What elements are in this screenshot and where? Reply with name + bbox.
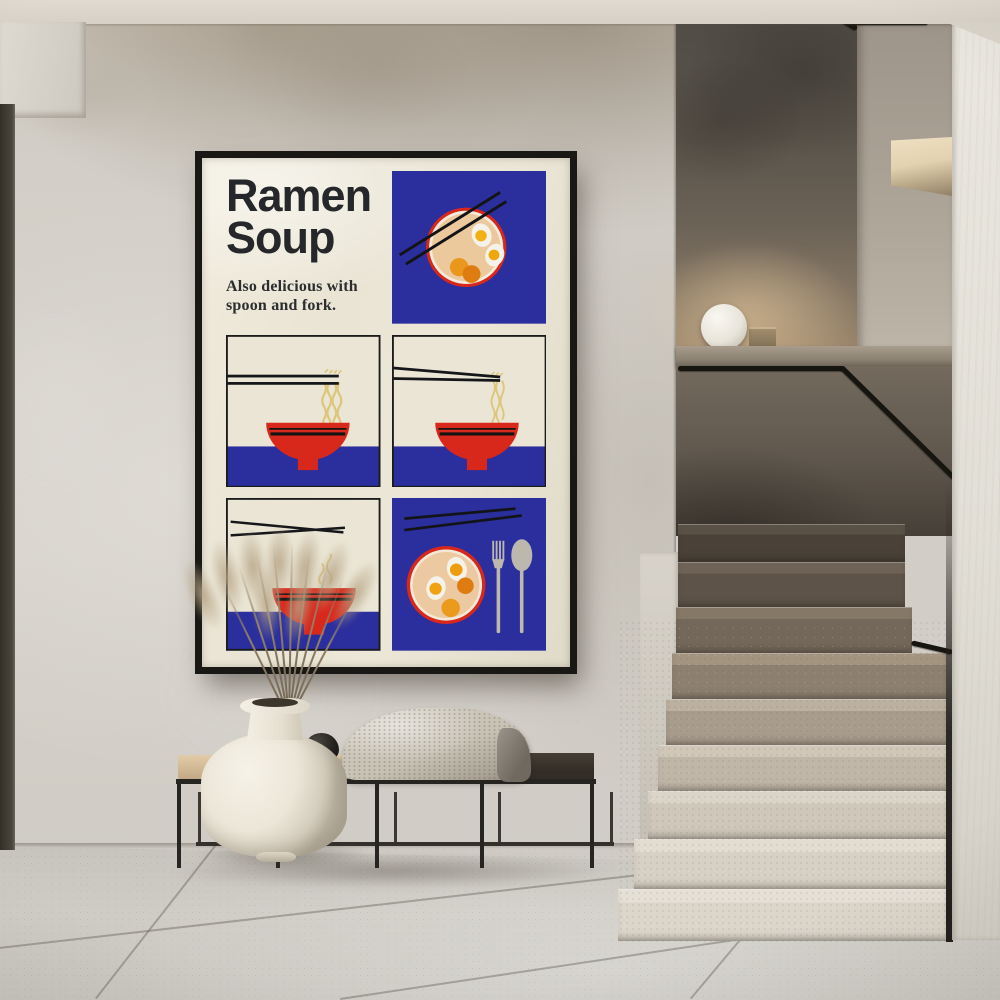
poster-title-block: Ramen Soup Also delicious with spoon and… xyxy=(226,171,381,324)
bench-leg xyxy=(590,784,594,868)
foreground-wall-texture xyxy=(952,22,1000,940)
stair-step xyxy=(618,889,946,941)
dried-pampas-grass xyxy=(160,530,420,720)
subtitle-line-1: Also delicious with xyxy=(226,277,381,297)
poster-panel-bowl-top-view xyxy=(392,171,547,324)
title-line-1: Ramen xyxy=(226,175,381,217)
ceiling xyxy=(0,0,1000,24)
stair-step xyxy=(676,607,912,653)
stair-step xyxy=(666,699,946,745)
poster-panel-noodle-pull-1 xyxy=(226,335,381,488)
handrail-horizontal xyxy=(678,366,845,371)
poster-title: Ramen Soup xyxy=(226,175,381,259)
stair-step xyxy=(672,653,946,699)
bench-leg xyxy=(480,784,484,868)
door-frame xyxy=(0,104,15,850)
stair-step xyxy=(634,839,946,889)
stair-step xyxy=(658,745,946,791)
stair-step xyxy=(678,562,905,607)
title-line-2: Soup xyxy=(226,217,381,259)
stair-step xyxy=(678,524,905,562)
vase-foot xyxy=(256,852,296,862)
bench-leg xyxy=(394,792,397,844)
subtitle-line-2: spoon and fork. xyxy=(226,296,381,316)
stair-step xyxy=(648,791,946,839)
bench-leg xyxy=(177,784,181,868)
bench-leg xyxy=(375,784,379,868)
bench-leg xyxy=(610,792,613,844)
half-wall-ledge xyxy=(676,346,952,366)
poster-panel-noodle-pull-2 xyxy=(392,335,547,488)
bench-leg xyxy=(498,792,501,844)
interior-scene: Ramen Soup Also delicious with spoon and… xyxy=(0,0,1000,1000)
bench-dark-top xyxy=(525,753,594,779)
stairwell-lower-wall xyxy=(676,366,952,536)
vase-mouth xyxy=(252,698,298,707)
ceramic-vase xyxy=(201,733,347,857)
sphere-lamp xyxy=(701,304,747,350)
poster-subtitle: Also delicious with spoon and fork. xyxy=(226,277,381,316)
